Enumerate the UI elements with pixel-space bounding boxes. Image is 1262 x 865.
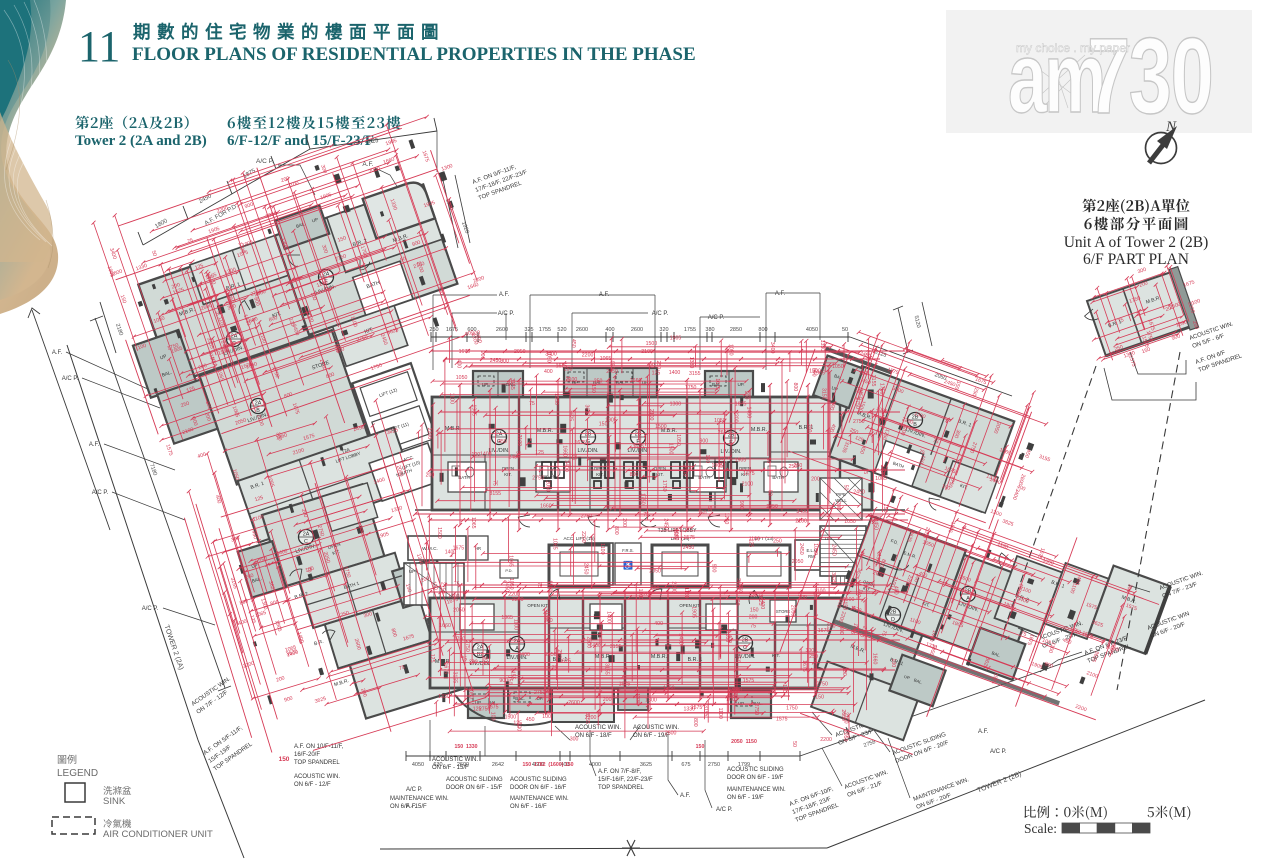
svg-text:A/C P.: A/C P. xyxy=(142,606,159,612)
svg-text:ON 6/F - 15/F: ON 6/F - 15/F xyxy=(432,765,469,771)
svg-text:250: 250 xyxy=(737,585,743,594)
svg-text:UP: UP xyxy=(738,701,744,706)
svg-text:3400: 3400 xyxy=(769,342,775,354)
svg-text:125: 125 xyxy=(748,539,754,548)
svg-text:125: 125 xyxy=(535,450,544,456)
svg-text:2100: 2100 xyxy=(648,409,654,421)
svg-text:ACOUSTIC WIN.: ACOUSTIC WIN. xyxy=(432,757,478,763)
svg-text:1065: 1065 xyxy=(508,555,514,567)
svg-text:1660: 1660 xyxy=(439,623,451,629)
svg-text:1050: 1050 xyxy=(728,344,734,356)
svg-text:2450: 2450 xyxy=(683,545,695,551)
svg-text:UP.: UP. xyxy=(537,696,544,701)
svg-text:2050: 2050 xyxy=(766,504,778,510)
svg-text:100: 100 xyxy=(516,723,522,732)
svg-text:2A: 2A xyxy=(303,531,310,537)
svg-text:2450: 2450 xyxy=(606,369,618,375)
svg-text:2200: 2200 xyxy=(820,737,832,743)
svg-text:DOOR ON 6/F - 19/F: DOOR ON 6/F - 19/F xyxy=(727,775,784,781)
svg-text:1100: 1100 xyxy=(513,619,519,630)
svg-text:3155: 3155 xyxy=(490,491,502,497)
svg-text:UP: UP xyxy=(825,536,831,541)
svg-text:A.F.: A.F. xyxy=(499,292,510,298)
svg-text:2200: 2200 xyxy=(426,428,432,440)
svg-text:A.F. ON 7/F-8/F,: A.F. ON 7/F-8/F, xyxy=(598,769,641,775)
svg-text:2600: 2600 xyxy=(576,327,588,333)
svg-text:3155: 3155 xyxy=(603,663,609,675)
svg-text:3625: 3625 xyxy=(583,405,589,417)
svg-text:1750: 1750 xyxy=(879,383,885,395)
svg-text:3625: 3625 xyxy=(757,594,763,606)
svg-text:A.F.: A.F. xyxy=(680,793,691,799)
svg-text:3625: 3625 xyxy=(568,410,574,422)
svg-text:2100: 2100 xyxy=(742,482,754,488)
svg-text:1100: 1100 xyxy=(814,588,825,594)
svg-text:MAINTENANCE WIN.: MAINTENANCE WIN. xyxy=(390,796,449,802)
svg-text:125: 125 xyxy=(749,593,758,599)
svg-text:200: 200 xyxy=(806,424,812,433)
svg-text:A/C P.: A/C P. xyxy=(92,490,109,496)
svg-text:1300: 1300 xyxy=(645,698,657,704)
svg-text:250: 250 xyxy=(594,379,603,385)
svg-text:2450: 2450 xyxy=(798,543,804,555)
svg-text:1905: 1905 xyxy=(670,336,682,342)
svg-text:2100: 2100 xyxy=(566,377,578,383)
svg-text:730: 730 xyxy=(1087,15,1212,136)
svg-text:ON 6/F - 18/F: ON 6/F - 18/F xyxy=(575,733,612,739)
svg-text:300: 300 xyxy=(798,595,807,601)
svg-text:50: 50 xyxy=(767,490,773,496)
svg-text:75: 75 xyxy=(750,624,756,630)
svg-text:3625: 3625 xyxy=(633,444,645,450)
svg-text:200: 200 xyxy=(469,659,478,665)
svg-text:1675: 1675 xyxy=(743,471,755,477)
svg-text:75: 75 xyxy=(529,401,535,407)
svg-text:4000: 4000 xyxy=(589,762,601,768)
svg-text:2050: 2050 xyxy=(792,559,804,565)
svg-text:1330: 1330 xyxy=(634,693,640,705)
svg-text:2200: 2200 xyxy=(580,531,586,543)
svg-text:Unit A of Tower 2 (2B): Unit A of Tower 2 (2B) xyxy=(1064,234,1209,251)
svg-text:75: 75 xyxy=(491,480,497,486)
svg-text:1330: 1330 xyxy=(438,694,450,700)
svg-text:2200: 2200 xyxy=(582,353,594,359)
svg-text:ON 6/F - 19/F: ON 6/F - 19/F xyxy=(727,795,764,801)
svg-text:LIV./DIN.: LIV./DIN. xyxy=(488,448,509,454)
svg-text:ACOUSTIC SLIDING: ACOUSTIC SLIDING xyxy=(510,777,567,783)
svg-text:2600: 2600 xyxy=(568,700,580,706)
svg-text:B: B xyxy=(256,408,260,414)
svg-text:75: 75 xyxy=(552,665,558,671)
svg-text:1675: 1675 xyxy=(735,402,747,408)
svg-text:1750: 1750 xyxy=(786,706,798,712)
svg-text:400: 400 xyxy=(456,360,462,369)
svg-text:1065: 1065 xyxy=(470,517,476,529)
svg-text:250: 250 xyxy=(809,654,818,660)
svg-text:KIT.: KIT. xyxy=(504,472,512,477)
svg-text:3155: 3155 xyxy=(452,672,458,684)
svg-text:1050: 1050 xyxy=(844,519,856,525)
svg-text:2600: 2600 xyxy=(586,637,592,649)
svg-text:2050: 2050 xyxy=(514,349,526,355)
svg-text:800: 800 xyxy=(792,383,798,392)
svg-text:50: 50 xyxy=(791,741,797,747)
svg-text:1750: 1750 xyxy=(735,651,741,663)
svg-text:F.R.S.: F.R.S. xyxy=(622,548,633,553)
svg-text:A.F.: A.F. xyxy=(775,291,786,297)
svg-text:2450: 2450 xyxy=(853,490,865,496)
svg-text:TOP SPANDREL: TOP SPANDREL xyxy=(598,785,644,791)
svg-text:期數的住宅物業的樓面平面圖: 期數的住宅物業的樓面平面圖 xyxy=(133,22,445,42)
svg-text:6/F PART PLAN: 6/F PART PLAN xyxy=(1083,251,1189,268)
svg-text:2450: 2450 xyxy=(504,580,510,592)
svg-text:125: 125 xyxy=(652,370,661,376)
svg-text:2600: 2600 xyxy=(665,730,677,736)
svg-text:N: N xyxy=(1165,119,1177,135)
svg-text:A.F.: A.F. xyxy=(89,442,100,448)
svg-text:1065: 1065 xyxy=(875,476,887,482)
svg-text:LEGEND: LEGEND xyxy=(57,768,98,779)
svg-text:1050: 1050 xyxy=(714,418,726,424)
svg-text:1100: 1100 xyxy=(637,589,643,600)
svg-text:M.B.R.: M.B.R. xyxy=(751,427,767,433)
svg-text:1750: 1750 xyxy=(639,493,645,505)
svg-text:200: 200 xyxy=(426,472,435,478)
svg-text:KIT.: KIT. xyxy=(772,653,780,659)
svg-text:A/C P.: A/C P. xyxy=(716,807,733,813)
svg-text:200: 200 xyxy=(749,614,758,620)
svg-text:ON 6/F - 15/F: ON 6/F - 15/F xyxy=(390,804,427,810)
svg-text:1905: 1905 xyxy=(735,457,747,463)
svg-text:2450: 2450 xyxy=(831,544,837,556)
svg-text:2450: 2450 xyxy=(663,518,669,530)
svg-text:200: 200 xyxy=(603,697,612,703)
svg-text:Scale:: Scale: xyxy=(1024,821,1057,836)
svg-text:1065: 1065 xyxy=(501,615,513,621)
svg-text:75: 75 xyxy=(570,454,576,460)
svg-text:100: 100 xyxy=(472,452,481,458)
svg-text:1675: 1675 xyxy=(801,660,807,672)
svg-text:1575: 1575 xyxy=(776,716,788,722)
svg-text:1660: 1660 xyxy=(630,378,642,384)
svg-text:75: 75 xyxy=(862,468,868,474)
svg-text:2600: 2600 xyxy=(840,709,846,721)
svg-text:B: B xyxy=(913,422,917,428)
svg-text:300: 300 xyxy=(651,586,660,592)
svg-text:675: 675 xyxy=(681,762,690,768)
svg-text:MAINTENANCE WIN.: MAINTENANCE WIN. xyxy=(727,787,786,793)
svg-text:2200: 2200 xyxy=(670,581,676,593)
svg-text:380: 380 xyxy=(705,327,714,333)
svg-text:OPEN KIT.: OPEN KIT. xyxy=(527,603,548,608)
svg-text:2600: 2600 xyxy=(718,430,730,436)
svg-text:1675: 1675 xyxy=(487,705,499,711)
svg-text:FLOOR PLANS OF RESIDENTIAL PRO: FLOOR PLANS OF RESIDENTIAL PROPERTIES IN… xyxy=(132,44,696,65)
svg-text:1750: 1750 xyxy=(685,385,697,391)
svg-text:75: 75 xyxy=(536,582,542,588)
svg-text:1675: 1675 xyxy=(459,349,471,355)
svg-text:1750: 1750 xyxy=(661,480,667,492)
svg-text:1500: 1500 xyxy=(809,368,821,374)
svg-text:1065: 1065 xyxy=(600,356,612,362)
svg-text:4050: 4050 xyxy=(412,762,424,768)
svg-text:♿: ♿ xyxy=(623,560,633,570)
svg-text:1905: 1905 xyxy=(690,606,696,618)
svg-text:LIV./DIN.: LIV./DIN. xyxy=(577,448,598,454)
svg-text:DOOR ON 6/F - 16/F: DOOR ON 6/F - 16/F xyxy=(510,785,567,791)
svg-text:1050: 1050 xyxy=(717,456,723,468)
svg-text:300: 300 xyxy=(734,597,740,606)
svg-text:2600: 2600 xyxy=(682,465,688,477)
svg-text:1400: 1400 xyxy=(480,451,492,457)
svg-text:4050: 4050 xyxy=(806,327,818,333)
svg-text:1065: 1065 xyxy=(552,538,558,550)
svg-text:2642: 2642 xyxy=(492,762,504,768)
svg-text:150 1330: 150 1330 xyxy=(454,744,477,750)
svg-text:A.F.: A.F. xyxy=(599,292,610,298)
svg-text:16/F-20/F: 16/F-20/F xyxy=(294,752,320,758)
svg-text:250: 250 xyxy=(698,511,707,517)
svg-text:450: 450 xyxy=(526,717,535,723)
svg-text:1750: 1750 xyxy=(663,686,675,692)
svg-text:A/C P.: A/C P. xyxy=(652,311,669,317)
svg-text:11: 11 xyxy=(78,22,120,71)
svg-text:3155: 3155 xyxy=(703,705,709,717)
svg-text:2450: 2450 xyxy=(583,563,589,575)
svg-text:2600: 2600 xyxy=(631,327,643,333)
svg-text:2050: 2050 xyxy=(467,687,473,699)
svg-text:900: 900 xyxy=(500,359,509,365)
svg-text:1675: 1675 xyxy=(575,440,587,446)
svg-text:KIT.: KIT. xyxy=(596,472,604,477)
svg-text:MAINTENANCE WIN.: MAINTENANCE WIN. xyxy=(510,796,569,802)
svg-text:250: 250 xyxy=(794,463,803,469)
svg-text:2100: 2100 xyxy=(641,349,653,355)
svg-text:1575: 1575 xyxy=(743,678,755,684)
svg-text:2B: 2B xyxy=(890,609,897,615)
svg-text:1100: 1100 xyxy=(599,543,605,554)
svg-text:AIR CONDITIONER UNIT: AIR CONDITIONER UNIT xyxy=(103,829,213,840)
svg-text:PIPE: PIPE xyxy=(836,492,846,497)
svg-text:A/C P.: A/C P. xyxy=(256,158,274,165)
svg-text:A/C P.: A/C P. xyxy=(990,749,1007,755)
svg-text:100: 100 xyxy=(890,659,896,668)
svg-text:75: 75 xyxy=(643,512,649,518)
svg-text:1750: 1750 xyxy=(723,513,729,525)
svg-text:6/F-12/F and 15/F-23/F: 6/F-12/F and 15/F-23/F xyxy=(227,133,374,149)
svg-text:150: 150 xyxy=(750,608,759,614)
svg-text:2450: 2450 xyxy=(490,358,502,364)
svg-text:3155: 3155 xyxy=(821,388,827,400)
svg-text:2850: 2850 xyxy=(730,327,742,333)
svg-text:900: 900 xyxy=(479,351,485,360)
svg-text:50: 50 xyxy=(765,457,771,463)
svg-text:520: 520 xyxy=(557,327,566,333)
svg-text:1755: 1755 xyxy=(684,327,696,333)
svg-text:1050: 1050 xyxy=(675,434,681,446)
svg-text:200: 200 xyxy=(811,477,820,483)
svg-text:250: 250 xyxy=(429,327,438,333)
svg-text:450: 450 xyxy=(570,339,576,348)
svg-text:2050 1150: 2050 1150 xyxy=(731,739,757,745)
svg-text:1500: 1500 xyxy=(655,424,667,430)
svg-text:3625: 3625 xyxy=(672,528,678,540)
svg-text:1050: 1050 xyxy=(832,364,844,370)
svg-text:150: 150 xyxy=(590,384,596,393)
svg-text:ACC. LIFT (15): ACC. LIFT (15) xyxy=(563,536,595,541)
svg-text:150: 150 xyxy=(704,455,710,464)
svg-text:1675: 1675 xyxy=(619,681,631,687)
svg-text:2050: 2050 xyxy=(649,568,661,574)
svg-text:A.F.: A.F. xyxy=(978,729,989,735)
svg-text:300: 300 xyxy=(570,737,579,743)
svg-text:1675: 1675 xyxy=(556,364,568,370)
svg-text:A/C P.: A/C P. xyxy=(708,315,725,321)
svg-text:400: 400 xyxy=(725,688,731,697)
svg-text:75: 75 xyxy=(461,656,467,662)
svg-text:1050: 1050 xyxy=(812,543,818,555)
svg-text:1905: 1905 xyxy=(470,405,476,417)
svg-text:2200: 2200 xyxy=(585,715,597,721)
svg-text:Tower 2 (2A and 2B): Tower 2 (2A and 2B) xyxy=(75,133,207,149)
svg-text:1400: 1400 xyxy=(746,407,752,419)
svg-text:DOOR ON 6/F - 15/F: DOOR ON 6/F - 15/F xyxy=(446,785,503,791)
svg-text:2750: 2750 xyxy=(708,762,720,768)
svg-text:ACOUSTIC SLIDING: ACOUSTIC SLIDING xyxy=(727,767,784,773)
svg-text:150: 150 xyxy=(599,421,608,427)
svg-text:1500: 1500 xyxy=(646,341,658,347)
svg-text:800: 800 xyxy=(630,472,639,478)
svg-text:400: 400 xyxy=(605,327,614,333)
svg-text:100: 100 xyxy=(542,714,551,720)
svg-text:SINK: SINK xyxy=(103,796,126,807)
svg-text:2750: 2750 xyxy=(534,690,546,696)
svg-text:1400: 1400 xyxy=(445,550,457,556)
svg-text:1500: 1500 xyxy=(436,527,442,539)
svg-text:3400: 3400 xyxy=(796,509,808,515)
svg-text:1100: 1100 xyxy=(544,610,550,621)
svg-text:2A: 2A xyxy=(496,431,503,437)
svg-text:2750: 2750 xyxy=(532,476,544,482)
svg-text:3400: 3400 xyxy=(563,460,569,472)
svg-text:250: 250 xyxy=(556,649,562,658)
svg-text:UP.: UP. xyxy=(737,382,744,387)
svg-text:3625: 3625 xyxy=(559,658,571,664)
svg-text:ON 6/F - 16/F: ON 6/F - 16/F xyxy=(510,804,547,810)
svg-text:900: 900 xyxy=(711,564,717,573)
svg-text:800: 800 xyxy=(838,626,844,635)
svg-text:1500: 1500 xyxy=(668,443,674,455)
svg-text:3155: 3155 xyxy=(610,644,622,650)
svg-text:50: 50 xyxy=(842,485,848,491)
svg-text:50: 50 xyxy=(706,506,712,512)
svg-text:2200: 2200 xyxy=(733,411,739,423)
svg-text:1500: 1500 xyxy=(505,714,517,720)
svg-text:900: 900 xyxy=(738,501,744,510)
svg-text:2100: 2100 xyxy=(724,631,730,643)
svg-text:2100: 2100 xyxy=(516,435,522,447)
svg-text:1675: 1675 xyxy=(442,663,448,675)
svg-text:1100: 1100 xyxy=(547,580,553,591)
svg-text:2750: 2750 xyxy=(816,682,828,688)
svg-text:800: 800 xyxy=(613,526,619,535)
svg-text:1660: 1660 xyxy=(562,445,568,457)
svg-text:M.B.R.: M.B.R. xyxy=(651,654,667,660)
svg-text:320: 320 xyxy=(659,327,668,333)
svg-text:2450: 2450 xyxy=(508,455,520,461)
svg-text:A.F.: A.F. xyxy=(52,350,63,356)
svg-text:1300: 1300 xyxy=(670,402,682,408)
svg-text:2B: 2B xyxy=(585,431,592,437)
svg-text:900: 900 xyxy=(482,656,488,665)
svg-text:2450: 2450 xyxy=(545,652,557,658)
svg-text:250: 250 xyxy=(773,539,782,545)
svg-text:1660: 1660 xyxy=(540,504,552,510)
svg-text:2750: 2750 xyxy=(581,514,593,520)
svg-text:3155: 3155 xyxy=(509,378,515,390)
svg-text:200: 200 xyxy=(621,518,627,527)
svg-text:75: 75 xyxy=(454,582,460,588)
svg-text:A.F.: A.F. xyxy=(362,161,373,168)
svg-text:A/C P.: A/C P. xyxy=(498,311,515,317)
svg-text:2050: 2050 xyxy=(842,730,848,742)
svg-text:my choice . my paper: my choice . my paper xyxy=(1016,41,1130,55)
svg-text:ACOUSTIC SLIDING: ACOUSTIC SLIDING xyxy=(446,777,503,783)
svg-text:100: 100 xyxy=(859,371,868,377)
svg-text:1100: 1100 xyxy=(449,393,455,404)
svg-text:1050: 1050 xyxy=(553,393,559,405)
svg-text:200: 200 xyxy=(835,501,841,510)
svg-text:3155: 3155 xyxy=(689,371,701,377)
svg-text:1750: 1750 xyxy=(454,636,466,642)
svg-text:400: 400 xyxy=(654,621,663,627)
svg-text:1575: 1575 xyxy=(684,535,696,541)
svg-text:2200: 2200 xyxy=(508,592,520,598)
svg-text:2050: 2050 xyxy=(545,480,551,492)
svg-text:325: 325 xyxy=(524,327,533,333)
svg-text:UP: UP xyxy=(409,569,415,574)
svg-text:2100: 2100 xyxy=(795,519,807,525)
svg-text:2A: 2A xyxy=(514,638,521,644)
svg-text:1755: 1755 xyxy=(539,327,551,333)
svg-text:1400: 1400 xyxy=(606,611,612,623)
svg-text:STORE: STORE xyxy=(776,609,791,614)
svg-text:300: 300 xyxy=(806,648,815,654)
svg-text:100: 100 xyxy=(490,712,496,721)
svg-text:ON 6/F - 12/F: ON 6/F - 12/F xyxy=(294,782,331,788)
svg-text:1675: 1675 xyxy=(714,378,720,390)
svg-text:400: 400 xyxy=(544,369,553,375)
svg-text:900: 900 xyxy=(743,391,749,400)
svg-text:50: 50 xyxy=(842,327,848,333)
svg-text:A/C P.: A/C P. xyxy=(406,787,423,793)
svg-text:3155: 3155 xyxy=(865,350,871,362)
svg-text:OPEN KIT.: OPEN KIT. xyxy=(679,603,700,608)
svg-text:2050: 2050 xyxy=(790,605,796,617)
svg-text:1050: 1050 xyxy=(456,375,468,381)
svg-text:300: 300 xyxy=(841,667,847,676)
svg-text:15/F-16/F, 22/F-23/F: 15/F-16/F, 22/F-23/F xyxy=(598,777,653,783)
svg-text:1400: 1400 xyxy=(678,633,684,645)
svg-text:2050: 2050 xyxy=(453,608,465,614)
svg-text:3400: 3400 xyxy=(545,352,557,358)
svg-text:150: 150 xyxy=(815,695,824,701)
svg-text:150: 150 xyxy=(279,756,290,763)
svg-text:1330: 1330 xyxy=(688,357,694,369)
svg-text:1330: 1330 xyxy=(684,707,696,713)
svg-text:1400: 1400 xyxy=(669,370,681,376)
svg-text:ACOUSTIC WIN.: ACOUSTIC WIN. xyxy=(294,774,340,780)
